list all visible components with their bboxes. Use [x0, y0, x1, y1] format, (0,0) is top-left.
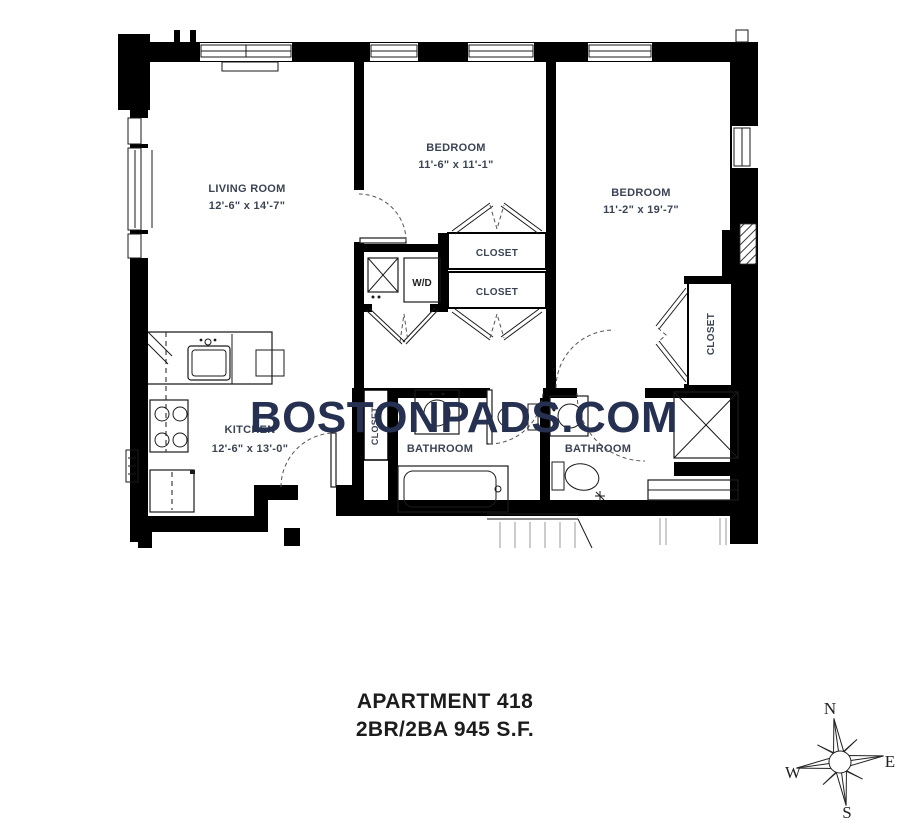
window-living-left-small-bottom: [126, 234, 148, 258]
kitchen-dims: 12'-6" x 13'-0": [212, 443, 288, 455]
window-bedroom1-right: [468, 43, 534, 61]
floor-plan-drawing: LIVING ROOM 12'-6" x 14'-7" BEDROOM 11'-…: [0, 0, 924, 830]
compass-east-label: E: [885, 752, 895, 771]
closet-bedroom2-label: CLOSET: [706, 313, 717, 355]
stairs: [487, 514, 726, 548]
closet-lower-doors: [452, 309, 542, 340]
window-living-left-large: [126, 148, 152, 230]
compass-south-label: S: [842, 803, 851, 822]
bathroom1-label: BATHROOM: [407, 443, 473, 455]
window-bedroom2-top: [588, 43, 652, 61]
bedroom1-dims: 11'-6" x 11'-1": [418, 159, 493, 171]
window-bedroom2-right: [732, 126, 758, 168]
utility-box: [368, 258, 398, 299]
laundry-label: W/D: [412, 278, 431, 289]
floor-drain: [595, 491, 605, 501]
window-bedroom1-left: [370, 43, 418, 61]
watermark: BOSTONPADS.COM: [250, 393, 678, 442]
kitchen-sink: [188, 339, 230, 380]
stove: [150, 400, 188, 452]
apartment-title: APARTMENT 418: [357, 690, 533, 713]
closet-upper-doors: [452, 203, 542, 234]
kitchen-appliance: [256, 350, 284, 376]
closet-lower-label: CLOSET: [476, 287, 518, 298]
refrigerator: [150, 470, 195, 512]
bedroom2-label: BEDROOM: [611, 187, 671, 199]
bathroom2-label: BATHROOM: [565, 443, 631, 455]
living-room-dims: 12'-6" x 14'-7": [209, 200, 285, 212]
hatched-wall-section: [740, 224, 756, 264]
bathroom2-toilet: [552, 461, 601, 494]
compass-west-label: W: [785, 763, 802, 782]
window-living-top: [200, 43, 292, 71]
window-living-left-small-top: [126, 118, 148, 144]
bedroom2-dims: 11'-2" x 19'-7": [603, 204, 679, 216]
closet-upper-label: CLOSET: [476, 248, 518, 259]
floor-plan-page: LIVING ROOM 12'-6" x 14'-7" BEDROOM 11'-…: [0, 0, 924, 830]
compass-rose: N E S W: [785, 699, 895, 822]
title-block: APARTMENT 418 2BR/2BA 945 S.F.: [356, 690, 534, 741]
living-room-label: LIVING ROOM: [208, 183, 285, 195]
compass-north-label: N: [824, 699, 836, 718]
window-roof-stub: [736, 30, 748, 42]
closet-bedroom2-doors: [656, 288, 689, 382]
bedroom1-label: BEDROOM: [426, 142, 486, 154]
apartment-subtitle: 2BR/2BA 945 S.F.: [356, 718, 534, 741]
bedroom1-door-leaf: [360, 238, 406, 243]
laundry-doors: [366, 308, 438, 344]
